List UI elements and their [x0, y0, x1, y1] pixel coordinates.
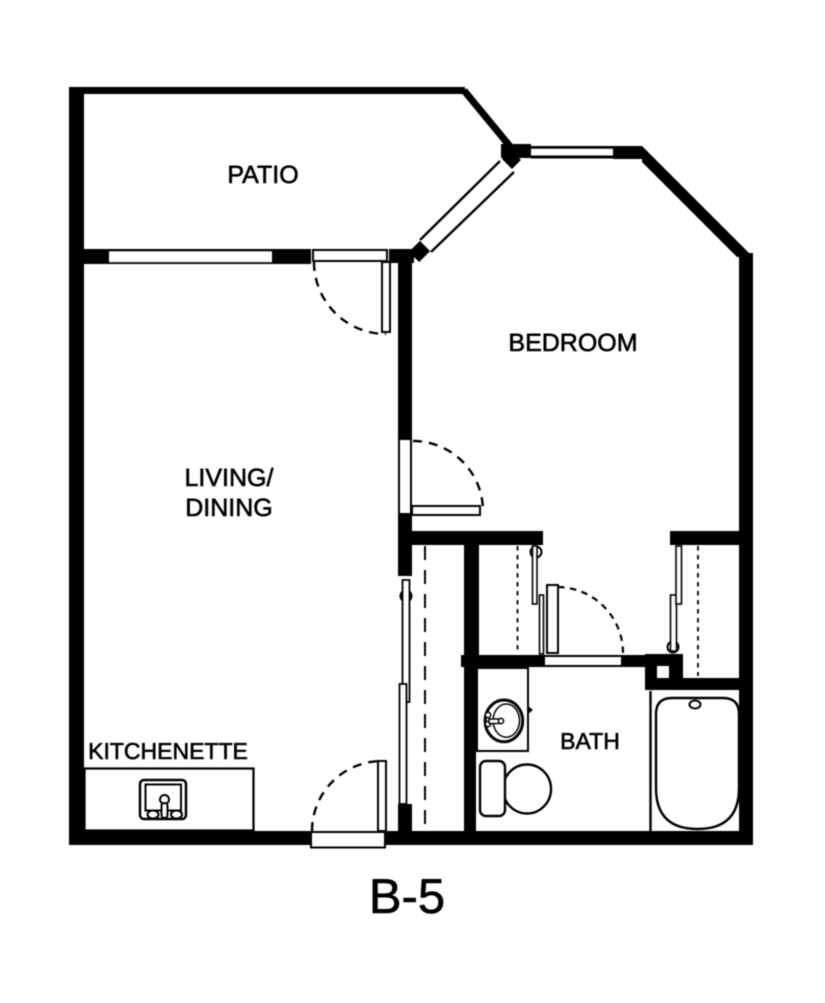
svg-text:B-5: B-5: [369, 870, 445, 924]
svg-text:DINING: DINING: [185, 494, 273, 522]
svg-text:BEDROOM: BEDROOM: [508, 329, 637, 357]
svg-text:KITCHENETTE: KITCHENETTE: [88, 738, 248, 764]
svg-text:BATH: BATH: [560, 728, 620, 754]
svg-text:LIVING/: LIVING/: [185, 464, 274, 492]
svg-text:PATIO: PATIO: [227, 161, 298, 189]
